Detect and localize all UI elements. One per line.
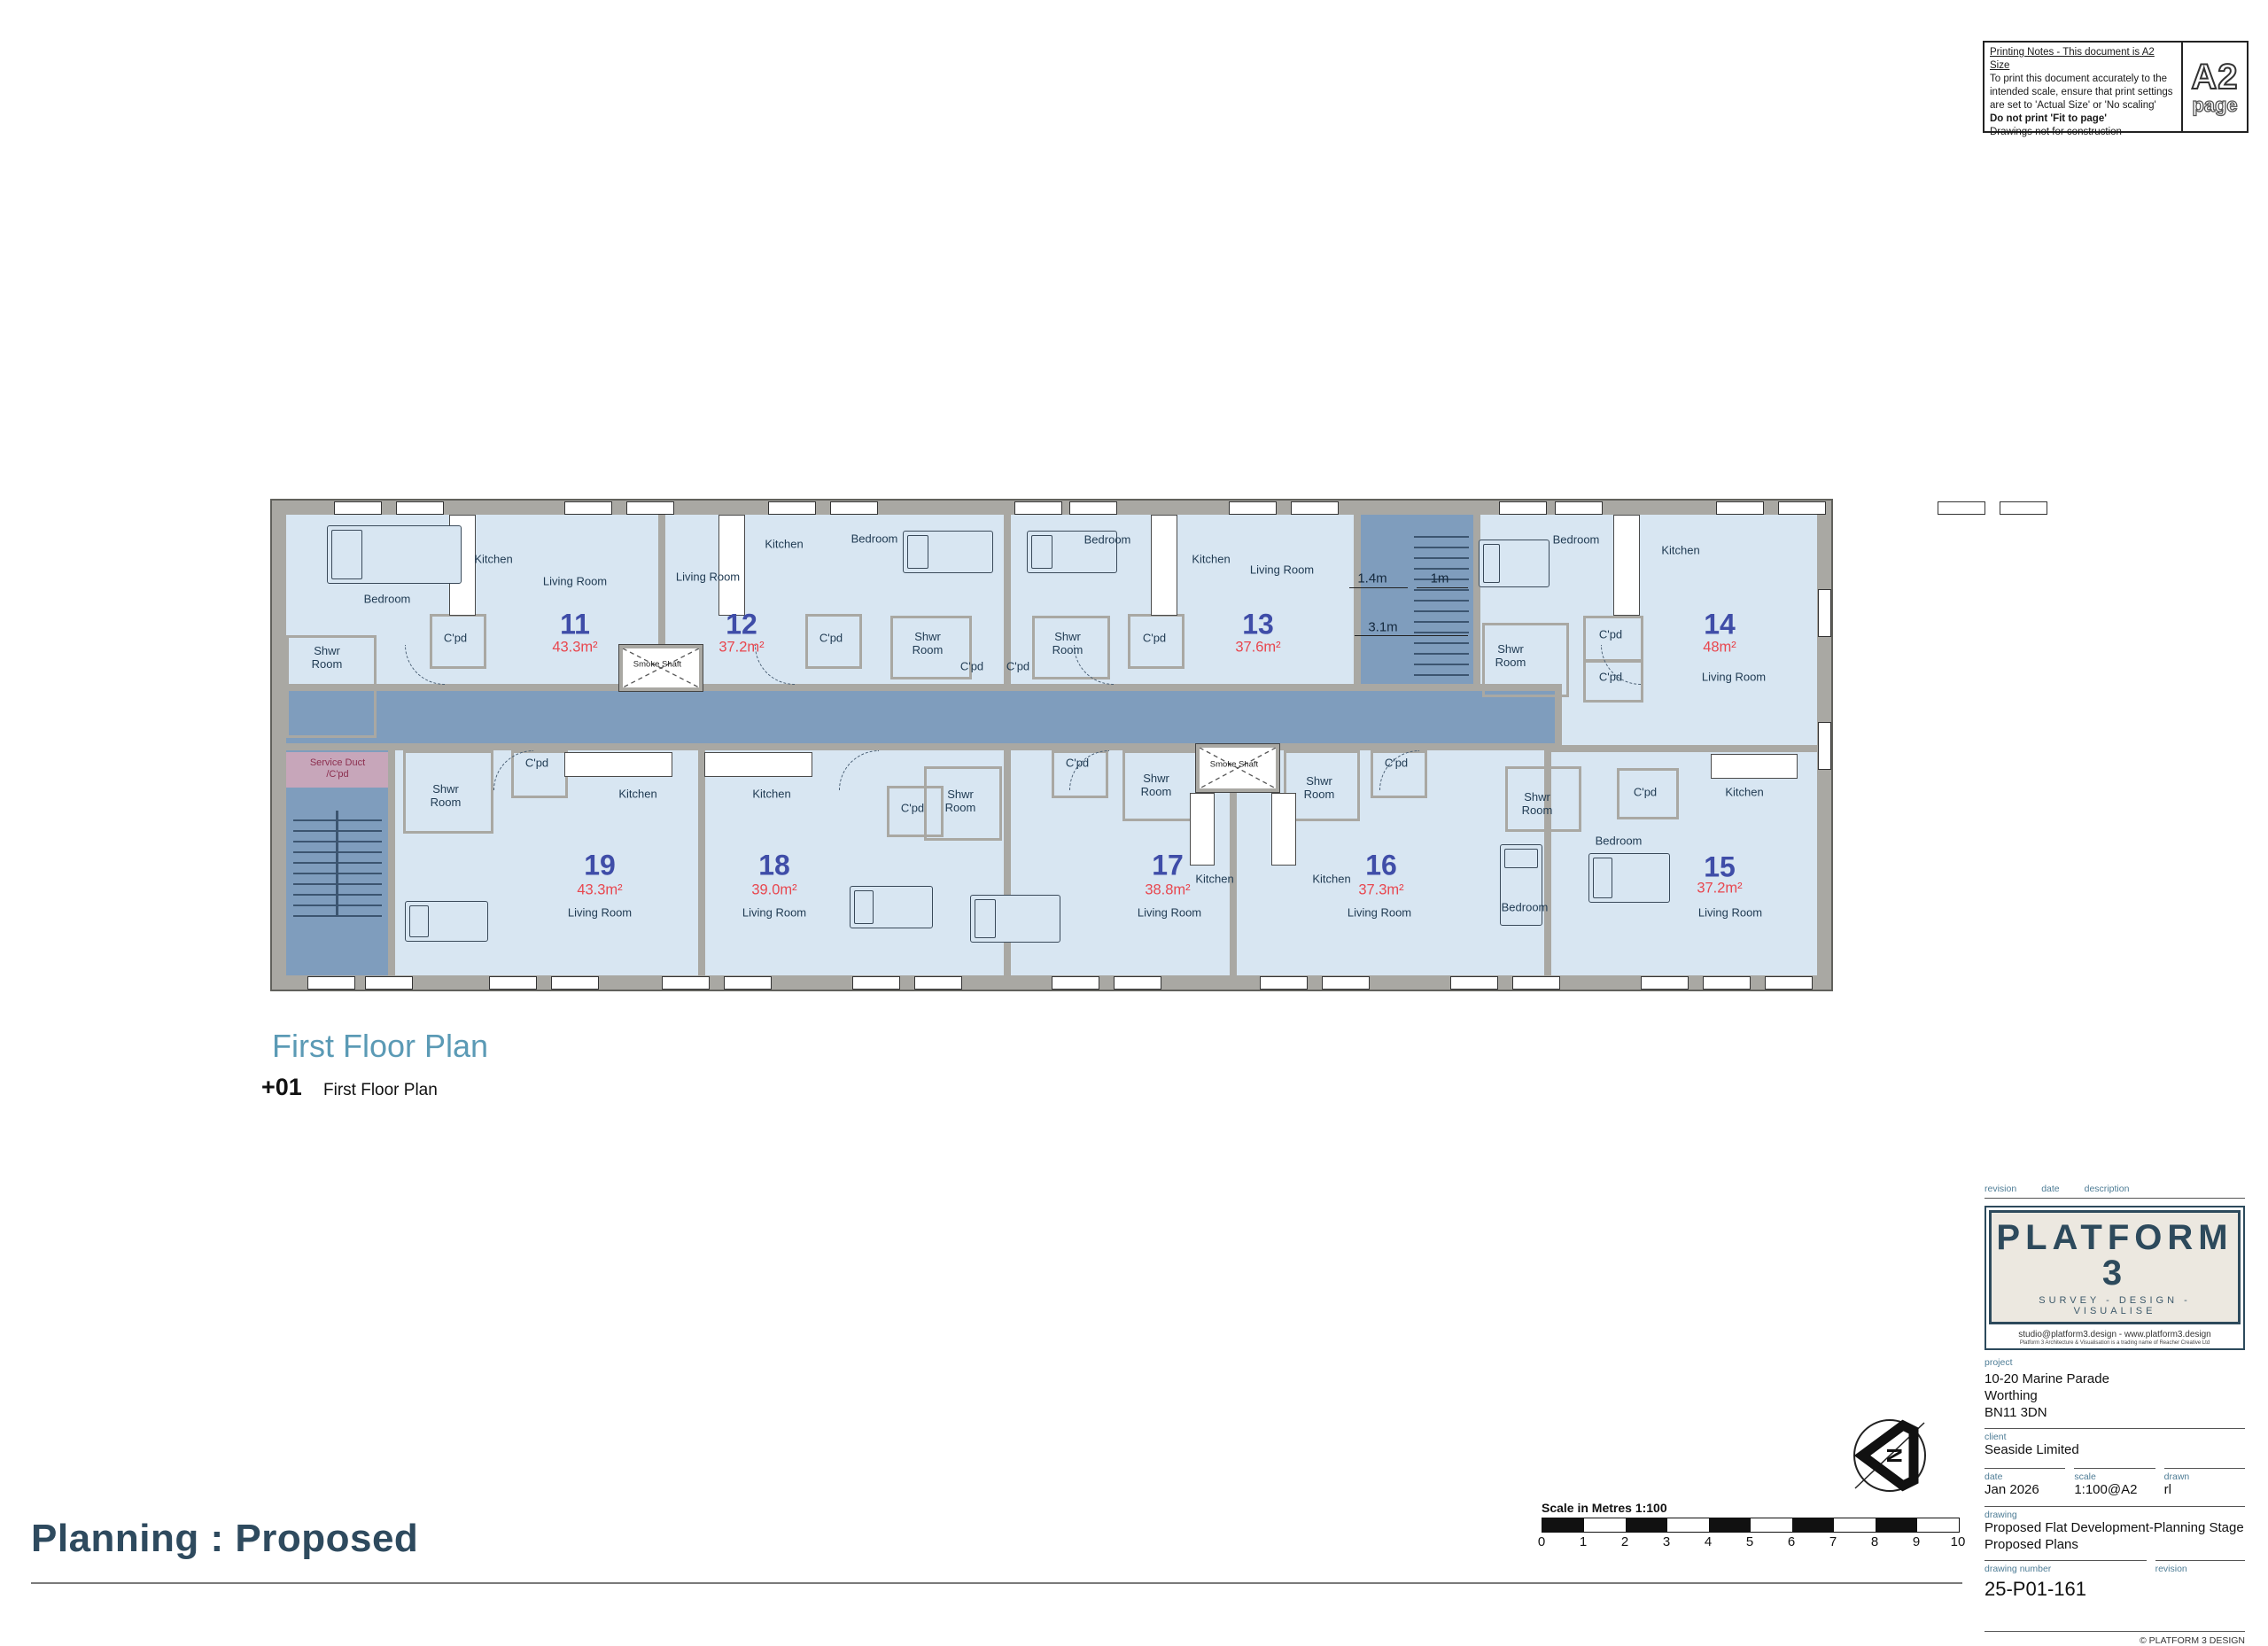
room-label: Bedroom bbox=[1596, 835, 1643, 849]
smoke-shaft-label: Smoke Shaft bbox=[633, 660, 681, 670]
plan-title: First Floor Plan bbox=[272, 1028, 488, 1065]
window bbox=[852, 976, 900, 990]
window bbox=[1229, 501, 1277, 515]
flat-area: 39.0m² bbox=[751, 882, 796, 899]
window bbox=[914, 976, 962, 990]
window bbox=[1641, 976, 1689, 990]
printing-notes-last-line: Drawings not for construction bbox=[1990, 126, 2176, 139]
scale-bar-ticks: 0 1 2 3 4 5 6 7 8 9 10 bbox=[1542, 1533, 1958, 1549]
window bbox=[724, 976, 772, 990]
room-label: C'pd bbox=[1634, 787, 1657, 800]
window bbox=[1014, 501, 1062, 515]
flat-number: 11 bbox=[560, 609, 590, 641]
level-code: +01 bbox=[261, 1074, 302, 1101]
window bbox=[396, 501, 444, 515]
project-town: Worthing bbox=[1984, 1388, 2245, 1405]
room-label: Shwr Room bbox=[1046, 631, 1089, 657]
room-label: C'pd bbox=[1599, 672, 1622, 685]
revision-label: revision bbox=[2155, 1564, 2187, 1574]
room-label: Kitchen bbox=[474, 554, 512, 567]
printing-notes-title: Printing Notes - This document is A2 Siz… bbox=[1990, 46, 2176, 73]
room-label: Living Room bbox=[1348, 907, 1411, 920]
kitchen-counter bbox=[1271, 793, 1296, 866]
bed bbox=[1479, 540, 1550, 587]
room-label: Bedroom bbox=[1084, 534, 1131, 547]
flat-number: 19 bbox=[584, 850, 616, 882]
window bbox=[830, 501, 878, 515]
stair-rail bbox=[336, 811, 338, 917]
room-label: Kitchen bbox=[1661, 545, 1699, 558]
window bbox=[1716, 501, 1764, 515]
wall bbox=[286, 684, 1562, 691]
date-col-label: date bbox=[2041, 1184, 2059, 1194]
kitchen-counter bbox=[704, 752, 812, 777]
svg-text:N: N bbox=[1883, 1448, 1907, 1463]
room-label: C'pd bbox=[1385, 757, 1408, 771]
window bbox=[1765, 976, 1813, 990]
client-label: client bbox=[1984, 1432, 2007, 1442]
room-label: C'pd bbox=[1006, 661, 1029, 674]
scale-label: scale bbox=[2074, 1471, 2096, 1482]
kitchen-counter bbox=[718, 515, 745, 616]
printing-notes-line: are set to 'Actual Size' or 'No scaling' bbox=[1990, 99, 2176, 113]
drawing-number: 25-P01-161 bbox=[1984, 1578, 2147, 1601]
room-label: Living Room bbox=[742, 907, 806, 920]
room-label: Shwr Room bbox=[1298, 775, 1340, 802]
bed bbox=[970, 895, 1060, 943]
printing-notes-line: To print this document accurately to the bbox=[1990, 73, 2176, 86]
room-label: C'pd bbox=[525, 757, 548, 771]
window bbox=[1260, 976, 1308, 990]
dim-label: 1m bbox=[1431, 571, 1449, 586]
scale-bar-label: Scale in Metres 1:100 bbox=[1542, 1501, 1967, 1515]
room-label: C'pd bbox=[901, 803, 924, 816]
bed bbox=[405, 901, 488, 942]
window bbox=[564, 501, 612, 515]
scale-value: 1:100@A2 bbox=[2074, 1482, 2155, 1499]
kitchen-counter bbox=[1711, 754, 1798, 779]
printing-notes-line: intended scale, ensure that print settin… bbox=[1990, 86, 2176, 99]
date-value: Jan 2026 bbox=[1984, 1482, 2065, 1499]
flat-number: 17 bbox=[1152, 850, 1184, 882]
flat-area: 37.2m² bbox=[718, 640, 764, 656]
dim-line bbox=[1355, 635, 1468, 636]
logo-name: PLATFORM 3 bbox=[1995, 1220, 2234, 1291]
room-label: Bedroom bbox=[1502, 902, 1549, 915]
a2-page-badge: A2 page bbox=[2181, 43, 2247, 131]
room-label: Shwr Room bbox=[424, 783, 467, 810]
a2-label: A2 bbox=[2191, 58, 2238, 97]
description-col-label: description bbox=[2085, 1184, 2130, 1194]
printing-notes-bold-line: Do not print 'Fit to page' bbox=[1990, 113, 2176, 126]
dim-line bbox=[1417, 587, 1468, 588]
project-postcode: BN11 3DN bbox=[1984, 1405, 2245, 1422]
room-label: Bedroom bbox=[364, 594, 411, 607]
copyright: © PLATFORM 3 DESIGN bbox=[1984, 1631, 2245, 1646]
kitchen-counter bbox=[1151, 515, 1177, 616]
flat-area: 48m² bbox=[1703, 640, 1736, 656]
stage-title: Planning : Proposed bbox=[31, 1517, 418, 1561]
room-label: Living Room bbox=[543, 576, 607, 589]
flat-area: 37.2m² bbox=[1697, 881, 1742, 897]
flat-area: 38.8m² bbox=[1145, 882, 1190, 899]
client-name: Seaside Limited bbox=[1984, 1442, 2245, 1459]
flat-area: 43.3m² bbox=[552, 640, 597, 656]
service-duct-label: Service Duct /C'pd bbox=[298, 757, 377, 780]
window bbox=[768, 501, 816, 515]
printing-notes-box: Printing Notes - This document is A2 Siz… bbox=[1983, 41, 2249, 133]
date-label: date bbox=[1984, 1471, 2002, 1482]
drawn-label: drawn bbox=[2164, 1471, 2190, 1482]
bed bbox=[903, 531, 993, 573]
window bbox=[1778, 501, 1826, 515]
drawing-sheet: { "printing_notes": { "title": "Printing… bbox=[0, 0, 2268, 1604]
stair-treads bbox=[1414, 527, 1469, 678]
room-label: Kitchen bbox=[1195, 873, 1233, 887]
room-label: C'pd bbox=[1599, 629, 1622, 642]
room-label: Living Room bbox=[1702, 672, 1766, 685]
room-label: Bedroom bbox=[1553, 534, 1600, 547]
flat-area: 37.3m² bbox=[1358, 882, 1403, 899]
room-label: C'pd bbox=[819, 633, 843, 646]
page-label: page bbox=[2192, 94, 2237, 117]
window bbox=[1450, 976, 1498, 990]
window bbox=[1818, 722, 1831, 770]
dim-line bbox=[1349, 587, 1408, 588]
window bbox=[1938, 501, 1985, 515]
flat-number: 12 bbox=[726, 609, 757, 641]
window bbox=[1703, 976, 1751, 990]
divider-line bbox=[31, 1582, 1962, 1584]
window bbox=[2000, 501, 2047, 515]
room-label: Living Room bbox=[568, 907, 632, 920]
room-label: Kitchen bbox=[765, 539, 803, 552]
room-label: Shwr Room bbox=[906, 631, 949, 657]
room-label: Shwr Room bbox=[1489, 643, 1532, 670]
revision-col-label: revision bbox=[1984, 1184, 2016, 1194]
wall bbox=[1544, 745, 1817, 752]
flat-number: 14 bbox=[1704, 609, 1736, 641]
project-label: project bbox=[1984, 1357, 2245, 1368]
wall bbox=[698, 743, 705, 975]
kitchen-counter bbox=[1190, 793, 1215, 866]
room-label: C'pd bbox=[1066, 757, 1089, 771]
dim-label: 1.4m bbox=[1357, 571, 1386, 586]
room-label: Kitchen bbox=[618, 788, 656, 802]
room-label: Kitchen bbox=[1192, 554, 1230, 567]
window bbox=[1069, 501, 1117, 515]
room-label: Living Room bbox=[1138, 907, 1201, 920]
window bbox=[1052, 976, 1099, 990]
window bbox=[1499, 501, 1547, 515]
drawing-number-label: drawing number bbox=[1984, 1564, 2051, 1574]
title-block: revision date description PLATFORM 3 SUR… bbox=[1984, 1184, 2245, 1646]
bed bbox=[850, 886, 933, 928]
room-label: Living Room bbox=[1250, 564, 1314, 578]
room-label: Shwr Room bbox=[1516, 791, 1558, 818]
scale-bar-segments bbox=[1542, 1518, 1960, 1533]
wall bbox=[1354, 515, 1361, 691]
wall bbox=[286, 743, 1562, 750]
smoke-shaft-label: Smoke Shaft bbox=[1210, 760, 1258, 770]
window bbox=[1512, 976, 1560, 990]
level-label: First Floor Plan bbox=[323, 1081, 438, 1100]
room-label: Living Room bbox=[1698, 907, 1762, 920]
meta-columns: date Jan 2026 scale 1:100@A2 drawn rl bbox=[1984, 1468, 2245, 1499]
bed bbox=[1588, 853, 1670, 903]
window bbox=[626, 501, 674, 515]
window bbox=[662, 976, 710, 990]
flat-area: 37.6m² bbox=[1235, 640, 1280, 656]
platform3-logo: PLATFORM 3 SURVEY - DESIGN - VISUALISE s… bbox=[1984, 1206, 2245, 1350]
room-label: Kitchen bbox=[1725, 787, 1763, 800]
window bbox=[489, 976, 537, 990]
wall bbox=[388, 743, 395, 975]
room-label: Shwr Room bbox=[1135, 773, 1177, 799]
project-address: 10-20 Marine Parade bbox=[1984, 1371, 2245, 1388]
drawing-title-line1: Proposed Flat Development-Planning Stage bbox=[1984, 1520, 2245, 1537]
drawing-title-line2: Proposed Plans bbox=[1984, 1537, 2245, 1554]
room-label: C'pd bbox=[1143, 633, 1166, 646]
room-label: C'pd bbox=[444, 633, 467, 646]
corridor bbox=[286, 691, 1562, 743]
north-arrow-icon: N bbox=[1848, 1414, 1931, 1497]
window bbox=[1114, 976, 1161, 990]
window bbox=[1291, 501, 1339, 515]
window bbox=[1555, 501, 1603, 515]
printing-notes-text: Printing Notes - This document is A2 Siz… bbox=[1984, 43, 2181, 131]
logo-contact: studio@platform3.design - www.platform3.… bbox=[1986, 1327, 2243, 1339]
room-label: Shwr Room bbox=[939, 788, 982, 815]
kitchen-counter bbox=[564, 752, 672, 777]
revision-header: revision date description bbox=[1984, 1184, 2245, 1199]
flat-number: 18 bbox=[758, 850, 790, 882]
logo-legal: Platform 3 Architecture & Visualisation … bbox=[1986, 1339, 2243, 1348]
flat-number: 13 bbox=[1242, 609, 1274, 641]
dim-label: 3.1m bbox=[1368, 620, 1397, 635]
window bbox=[365, 976, 413, 990]
kitchen-counter bbox=[1613, 515, 1640, 616]
flat-number: 16 bbox=[1365, 850, 1397, 882]
room-label: Bedroom bbox=[851, 533, 898, 547]
bed bbox=[327, 525, 462, 584]
room-label: Living Room bbox=[676, 571, 740, 585]
window bbox=[551, 976, 599, 990]
room-label: Kitchen bbox=[752, 788, 790, 802]
room-label: Shwr Room bbox=[306, 645, 348, 672]
floor-plan: Smoke Shaft Smoke Shaft 1.4m 1m 3.1m Ser… bbox=[270, 499, 1833, 991]
window bbox=[1818, 589, 1831, 637]
flat-number: 15 bbox=[1704, 851, 1736, 884]
window bbox=[1322, 976, 1370, 990]
logo-tagline: SURVEY - DESIGN - VISUALISE bbox=[1995, 1295, 2234, 1316]
room-label: C'pd bbox=[960, 661, 983, 674]
flat-area: 43.3m² bbox=[577, 882, 622, 899]
window bbox=[307, 976, 355, 990]
scale-bar: Scale in Metres 1:100 0 1 2 3 4 5 6 7 8 … bbox=[1542, 1501, 1967, 1549]
drawn-value: rl bbox=[2164, 1482, 2245, 1499]
room-label: Kitchen bbox=[1312, 873, 1350, 887]
drawing-label: drawing bbox=[1984, 1510, 2017, 1520]
window bbox=[334, 501, 382, 515]
